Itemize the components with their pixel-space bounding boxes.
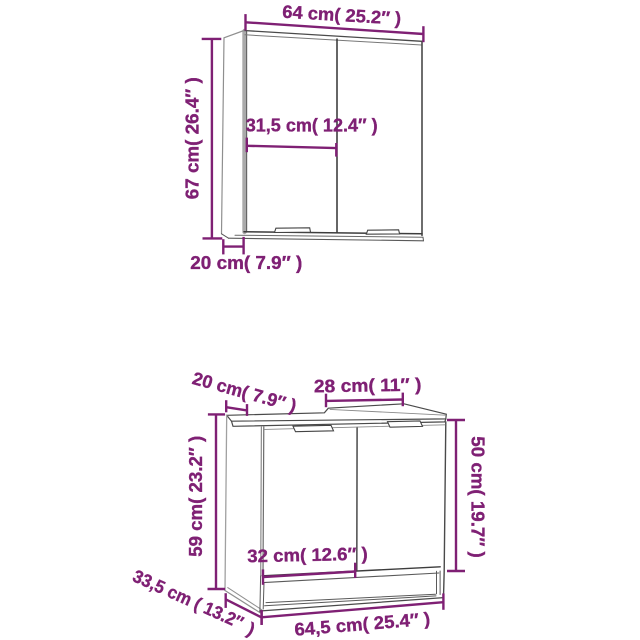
svg-text:59 cm( 23.2″ ): 59 cm( 23.2″ ) bbox=[186, 436, 206, 557]
svg-text:31,5 cm( 12.4″ ): 31,5 cm( 12.4″ ) bbox=[246, 116, 378, 136]
svg-text:50 cm( 19.7″ ): 50 cm( 19.7″ ) bbox=[468, 436, 488, 558]
svg-text:67 cm( 26.4″ ): 67 cm( 26.4″ ) bbox=[183, 77, 203, 199]
svg-text:20 cm( 7.9″ ): 20 cm( 7.9″ ) bbox=[190, 253, 302, 273]
svg-text:32 cm( 12.6″ ): 32 cm( 12.6″ ) bbox=[247, 544, 368, 567]
svg-text:28 cm( 11″ ): 28 cm( 11″ ) bbox=[314, 375, 422, 397]
